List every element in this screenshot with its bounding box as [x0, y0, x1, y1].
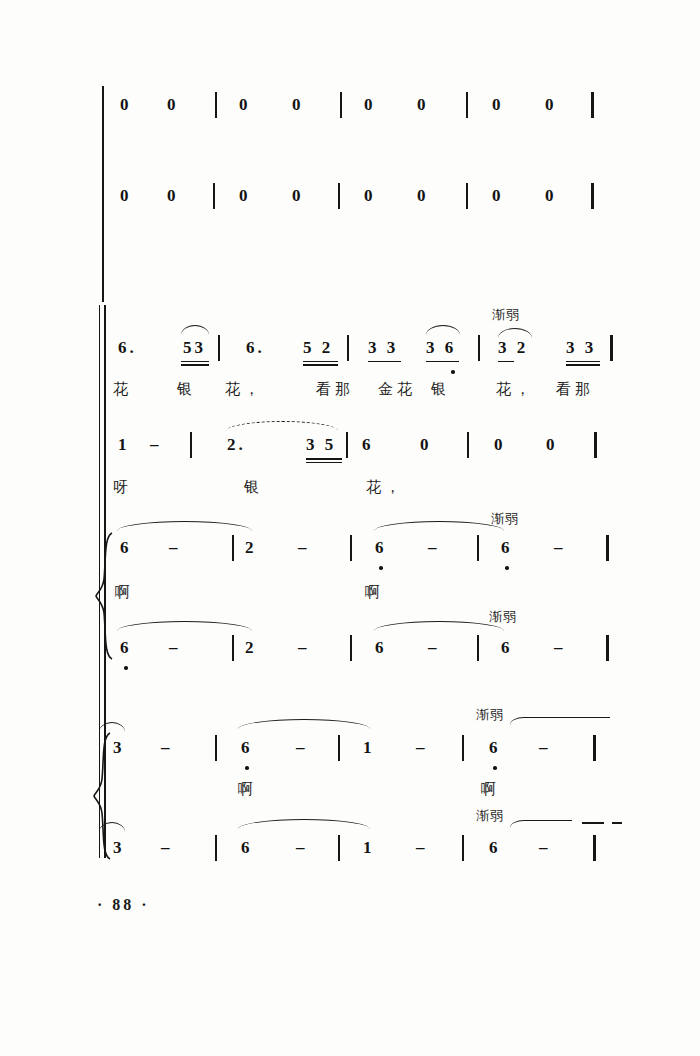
barline [338, 735, 340, 761]
barline [350, 535, 352, 561]
note: – [428, 538, 440, 558]
system1-left-barline [102, 86, 104, 302]
lyric: 银 [431, 380, 450, 398]
barline [478, 335, 480, 361]
note: – [539, 838, 551, 858]
note: – [296, 838, 308, 858]
barline [347, 335, 349, 361]
barline [477, 535, 479, 561]
slur [374, 621, 504, 631]
octave-dot [505, 566, 509, 570]
note: 1 [363, 738, 375, 758]
rest: 0 [292, 186, 304, 206]
barline [462, 835, 464, 861]
barline [467, 432, 469, 458]
note: 2 [245, 538, 257, 558]
note: 0 [494, 435, 506, 455]
slur [99, 822, 125, 832]
note: 6. [118, 338, 137, 358]
note: 1 [118, 435, 130, 455]
note: – [161, 738, 173, 758]
barline [215, 835, 217, 861]
note: 6 [362, 435, 374, 455]
note: 3 6 [426, 338, 456, 358]
barline [338, 183, 340, 209]
lyric: 金花 [378, 380, 416, 398]
note: – [298, 638, 310, 658]
note: 6 [501, 638, 513, 658]
rest: 0 [167, 186, 179, 206]
barline [462, 735, 464, 761]
octave-dot [124, 666, 128, 670]
decrescendo-dash [582, 822, 604, 824]
note: 3 [113, 738, 125, 758]
rest: 0 [364, 95, 376, 115]
slur [181, 325, 209, 335]
lyric: 花， [225, 380, 263, 398]
octave-dot [451, 370, 455, 374]
beam [303, 364, 338, 366]
note: – [554, 538, 566, 558]
barline [346, 432, 348, 458]
rest: 0 [120, 186, 132, 206]
rest: 0 [545, 186, 557, 206]
rest: 0 [239, 186, 251, 206]
dynamic-marking: 渐弱 [489, 609, 517, 624]
lyric: 啊 [115, 583, 134, 601]
note: – [554, 638, 566, 658]
barline [477, 635, 479, 661]
barline [190, 432, 192, 458]
voice-brace [92, 731, 114, 861]
rest: 0 [492, 95, 504, 115]
voice-brace [94, 531, 116, 661]
barline [340, 92, 342, 118]
slur [374, 521, 504, 531]
slur [117, 621, 252, 631]
note: 3 [113, 838, 125, 858]
slur [99, 722, 125, 732]
note: 6 [489, 838, 501, 858]
page-number: · 88 · [97, 896, 150, 914]
barline-final [591, 183, 594, 209]
lyric: 看那 [316, 380, 354, 398]
barline [466, 92, 468, 118]
beam [306, 462, 342, 464]
lyric: 花 [113, 380, 132, 398]
barline [215, 92, 217, 118]
note: 6 [120, 538, 132, 558]
note: – [296, 738, 308, 758]
barline-final [610, 335, 613, 361]
note: – [150, 435, 162, 455]
lyric: 花， [496, 380, 534, 398]
slur-dashed [226, 421, 338, 431]
barline-final [606, 635, 609, 661]
octave-dot [493, 766, 497, 770]
barline-final [606, 535, 609, 561]
note: 3 5 [306, 435, 336, 455]
note: 3 2 [498, 338, 528, 358]
note: 1 [363, 838, 375, 858]
decrescendo-line [510, 820, 572, 829]
note: 53 [183, 338, 206, 358]
note: 6 [375, 638, 387, 658]
barline [466, 183, 468, 209]
note: 6 [120, 638, 132, 658]
rest: 0 [364, 186, 376, 206]
lyric: 银 [177, 380, 196, 398]
note: – [169, 538, 181, 558]
slur [238, 719, 370, 729]
barline-final [593, 835, 596, 861]
beam [303, 361, 338, 363]
lyric: 银 [244, 478, 263, 496]
barline [232, 535, 234, 561]
note: – [428, 638, 440, 658]
note: 6 [375, 538, 387, 558]
rest: 0 [292, 95, 304, 115]
note: 6 [489, 738, 501, 758]
note: – [416, 838, 428, 858]
barline [215, 735, 217, 761]
beam [306, 458, 342, 460]
note: – [539, 738, 551, 758]
barline-final [591, 92, 594, 118]
note: – [161, 838, 173, 858]
note: 3 3 [368, 338, 398, 358]
note: 2 [245, 638, 257, 658]
barline-final [593, 735, 596, 761]
beam [368, 361, 401, 363]
octave-dot [245, 766, 249, 770]
rest: 0 [239, 95, 251, 115]
decrescendo-dash [612, 822, 622, 824]
note: 0 [546, 435, 558, 455]
rest: 0 [167, 95, 179, 115]
rest: 0 [120, 95, 132, 115]
dynamic-marking: 渐弱 [491, 511, 519, 526]
note: 6 [241, 838, 253, 858]
rest: 0 [545, 95, 557, 115]
rest: 0 [417, 95, 429, 115]
note: 0 [420, 435, 432, 455]
beam [181, 364, 209, 366]
barline [232, 635, 234, 661]
beam [498, 361, 514, 363]
beam [566, 364, 600, 366]
octave-dot [379, 566, 383, 570]
slur [117, 521, 252, 531]
barline [350, 635, 352, 661]
sheet-music-page: 0 0 0 0 0 0 0 0 0 0 0 0 0 0 0 0 渐弱 6. 53… [0, 0, 700, 1056]
barline [218, 335, 220, 361]
lyric: 呀 [113, 478, 132, 496]
decrescendo-line [510, 717, 610, 726]
slur [498, 328, 532, 338]
lyric: 啊 [481, 780, 500, 798]
barline-final [594, 432, 597, 458]
lyric: 看那 [556, 380, 594, 398]
barline [338, 835, 340, 861]
beam [426, 361, 459, 363]
note: – [298, 538, 310, 558]
dynamic-marking: 渐弱 [476, 808, 504, 823]
note: 6. [246, 338, 265, 358]
note: – [416, 738, 428, 758]
rest: 0 [417, 186, 429, 206]
slur [426, 325, 460, 335]
note: 3 3 [566, 338, 596, 358]
note: 6 [241, 738, 253, 758]
rest: 0 [492, 186, 504, 206]
barline [213, 183, 215, 209]
dynamic-marking: 渐弱 [476, 707, 504, 722]
note: 2. [227, 435, 246, 455]
note: 6 [501, 538, 513, 558]
dynamic-marking: 渐弱 [492, 307, 520, 322]
lyric: 花， [366, 478, 404, 496]
note: 5 2 [303, 338, 333, 358]
note: – [169, 638, 181, 658]
beam [181, 361, 209, 363]
lyric: 啊 [238, 780, 257, 798]
lyric: 啊 [365, 583, 384, 601]
slur [238, 819, 370, 829]
beam [566, 361, 600, 363]
